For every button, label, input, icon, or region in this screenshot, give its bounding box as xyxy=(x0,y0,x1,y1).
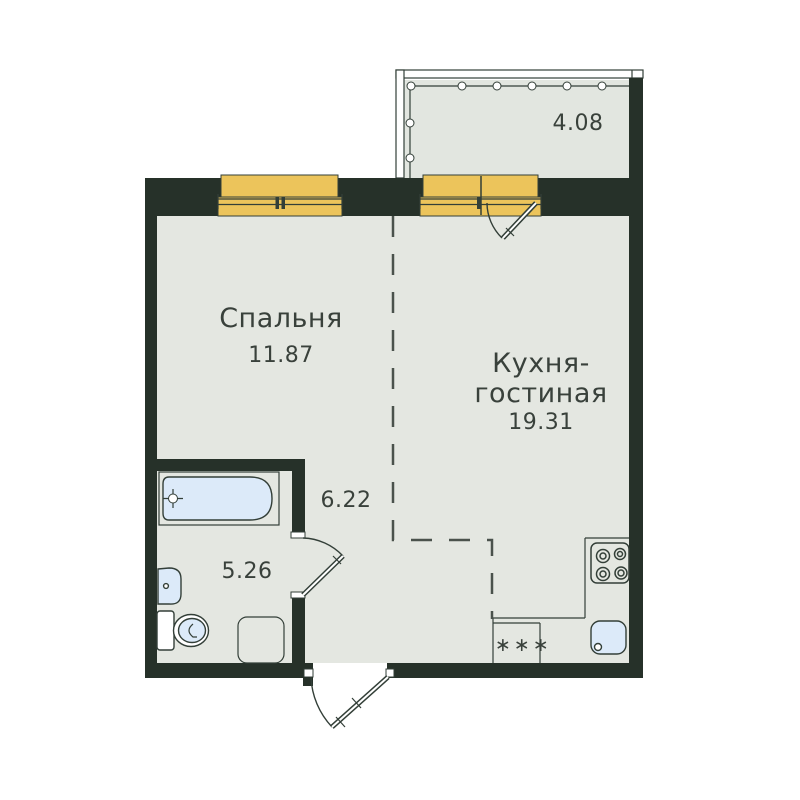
wall-right xyxy=(629,78,643,678)
entrance-door-arc xyxy=(311,677,332,727)
wall-bathroom-upper xyxy=(292,471,305,532)
balcony xyxy=(396,70,643,178)
kitchen-area: 19.31 xyxy=(508,410,573,435)
bathroom-door-jamb-top xyxy=(291,532,305,538)
kitchen-label-line2: гостиная xyxy=(474,378,607,409)
wall-bottom-left xyxy=(145,663,313,678)
apartment-floor xyxy=(157,216,629,663)
bedroom-area: 11.87 xyxy=(248,343,313,368)
entrance-jamb-left xyxy=(304,669,313,677)
balcony-railing-top xyxy=(396,70,643,78)
balcony-railing-left xyxy=(396,70,404,178)
hallway-area: 6.22 xyxy=(321,488,372,513)
entrance-door xyxy=(303,669,394,727)
fridge-asterisks: ∗∗∗ xyxy=(495,634,552,656)
wall-bottom-right xyxy=(387,663,643,678)
wall-bathroom-lower xyxy=(292,598,305,663)
wall-bedroom-bathroom xyxy=(157,459,305,471)
wall-left xyxy=(145,178,157,678)
floor-plan: ∗∗∗ Спальня 11.87 Кухня- гостиная 19.31 … xyxy=(0,0,800,800)
wash-basin xyxy=(158,568,181,604)
entrance-jamb-right xyxy=(386,669,394,677)
window-kitchen xyxy=(420,175,541,216)
bathroom-area: 5.26 xyxy=(222,559,273,584)
window-bedroom xyxy=(218,175,342,216)
balcony-area: 4.08 xyxy=(553,111,604,136)
kitchen-label-line1: Кухня- xyxy=(492,348,590,379)
floor-plan-page: ∗∗∗ Спальня 11.87 Кухня- гостиная 19.31 … xyxy=(0,0,800,800)
toilet xyxy=(157,611,209,650)
bedroom-label: Спальня xyxy=(219,303,343,334)
kitchen-sink xyxy=(591,621,626,654)
bathtub xyxy=(159,472,279,525)
